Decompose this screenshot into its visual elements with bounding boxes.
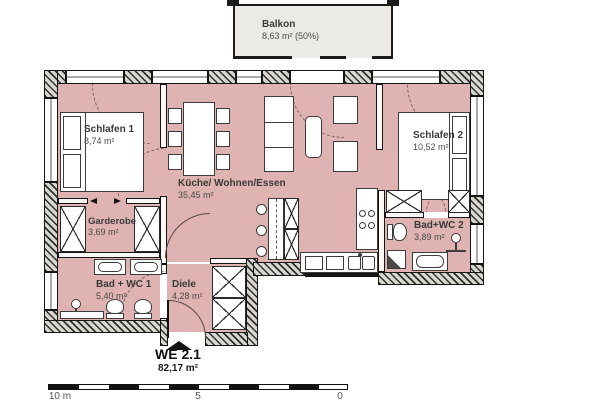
wall-segment [253, 262, 305, 276]
wall-segment [208, 70, 236, 84]
basin-bowl [134, 262, 158, 272]
wall-segment [470, 196, 484, 224]
toilet-bowl [393, 223, 407, 241]
room-area: 4,28 m² [172, 291, 203, 302]
balcony-corner-cap [387, 0, 399, 6]
balcony-area: 8,63 m² (50%) [262, 31, 319, 42]
tub-bowl [416, 255, 444, 268]
scale-label-10m: 10 m [38, 391, 82, 400]
kitchen-counter [356, 188, 378, 250]
window [372, 70, 440, 84]
chair [216, 108, 230, 124]
wall-segment [344, 70, 372, 84]
sink-basin [348, 256, 361, 270]
shower [387, 250, 406, 269]
window [44, 272, 58, 310]
chair [168, 108, 182, 124]
room-label-kueche: Küche/ Wohnen/Essen 35,45 m² [178, 178, 286, 201]
scale-bar [48, 384, 348, 390]
room-name: Schlafen 2 [413, 130, 463, 142]
balcony-label: Balkon 8,63 m² (50%) [262, 19, 319, 42]
balcony-bottom-wall-segment [233, 56, 292, 59]
room-label-garderobe: Garderobe 3,69 m² [88, 216, 136, 238]
kitchen-cabinet [284, 229, 299, 260]
toilet-tank [106, 313, 124, 319]
wall-segment [470, 70, 484, 96]
unit-number: WE 2.1 [136, 346, 220, 362]
kitchen-appliance [326, 256, 344, 270]
sofa-seam [265, 147, 293, 148]
stool [256, 204, 267, 215]
chair [168, 154, 182, 170]
room-label-schlafen1: Schlafen 1 8,74 m² [84, 124, 134, 147]
room-name: Bad+WC 2 [414, 220, 464, 232]
wall-segment [124, 70, 152, 84]
island-divider [276, 199, 278, 259]
room-area: 10,52 m² [413, 142, 463, 153]
room-area: 8,74 m² [84, 136, 134, 147]
sofa [264, 96, 294, 172]
pillow [63, 154, 81, 188]
window [236, 70, 262, 84]
room-name: Küche/ Wohnen/Essen [178, 178, 286, 190]
sliding-door-arrow-icon [114, 198, 121, 204]
sliding-door-arrow-icon [90, 198, 97, 204]
wardrobe [448, 190, 470, 213]
washbasin [130, 259, 162, 275]
wall-segment [126, 198, 160, 204]
chair [168, 131, 182, 147]
room-name: Garderobe [88, 216, 136, 227]
scale-label-5: 5 [188, 391, 208, 400]
room-name: Schlafen 1 [84, 124, 134, 136]
window [66, 70, 124, 84]
wall-segment [205, 332, 248, 346]
wall-segment [376, 84, 383, 150]
wardrobe [212, 298, 246, 330]
wardrobe [212, 266, 246, 298]
wardrobe [386, 190, 422, 213]
chair [216, 131, 230, 147]
room-area: 35,45 m² [178, 190, 286, 201]
armchair [333, 141, 358, 172]
stool [256, 225, 267, 236]
balcony-name: Balkon [262, 19, 319, 31]
bathtub [412, 252, 448, 271]
wall-segment [58, 198, 88, 204]
wall-segment [44, 70, 58, 98]
room-name: Bad + WC 1 [96, 279, 151, 291]
window [44, 98, 58, 182]
sink-basin [362, 256, 375, 270]
dining-table [183, 102, 215, 176]
wall-segment [58, 252, 160, 258]
room-label-bad1: Bad + WC 1 5,40 m² [96, 279, 151, 302]
wardrobe [60, 206, 86, 252]
unit-area: 82,17 m² [136, 363, 220, 374]
stove-burner [359, 210, 366, 217]
floor-plan: Balkon 8,63 m² (50%) [0, 0, 600, 400]
kitchen-appliance [305, 256, 323, 270]
window [470, 224, 484, 264]
room-area: 3,69 m² [88, 227, 136, 238]
wall-segment [160, 196, 167, 264]
sofa-seam [265, 122, 293, 123]
wall-segment [262, 70, 290, 84]
chair [216, 154, 230, 170]
balcony-bottom-wall-segment [372, 56, 393, 59]
pillow [63, 116, 81, 150]
balcony-bottom-wall-segment [320, 56, 346, 59]
unit-label: WE 2.1 82,17 m² [136, 346, 220, 374]
window [152, 70, 208, 84]
bath-bench [60, 311, 104, 319]
room-name: Diele [172, 279, 203, 291]
pedestal-base [446, 250, 466, 252]
toilet-tank [134, 313, 152, 319]
bed-divider [449, 113, 450, 199]
wardrobe [134, 206, 160, 252]
balcony-corner-cap [227, 0, 239, 6]
room-area: 5,40 m² [96, 291, 151, 302]
wall-segment [378, 190, 385, 272]
wall-segment [44, 182, 58, 272]
coffee-table [305, 116, 322, 158]
window [470, 96, 484, 196]
pedestal-fixture-icon [71, 299, 81, 309]
stove-burner [359, 222, 366, 229]
washbasin [94, 259, 126, 275]
kitchen-cabinet [284, 198, 299, 229]
room-label-schlafen2: Schlafen 2 10,52 m² [413, 130, 463, 153]
room-label-bad2: Bad+WC 2 3,89 m² [414, 220, 464, 243]
armchair [333, 96, 358, 124]
wall-segment [378, 272, 484, 285]
room-label-diele: Diele 4,28 m² [172, 279, 203, 302]
room-area: 3,89 m² [414, 232, 464, 243]
stool [256, 246, 267, 257]
basin-bowl [98, 262, 122, 272]
faucet [358, 253, 362, 257]
wall-segment [160, 84, 167, 148]
kitchen-island [268, 198, 284, 260]
balcony-door-opening [290, 70, 344, 84]
wall-segment [210, 258, 250, 264]
wall-segment [44, 320, 168, 333]
stove-burner [368, 222, 375, 229]
entrance-door-leaf [167, 300, 169, 338]
stove-burner [368, 210, 375, 217]
scale-label-0: 0 [330, 391, 350, 400]
